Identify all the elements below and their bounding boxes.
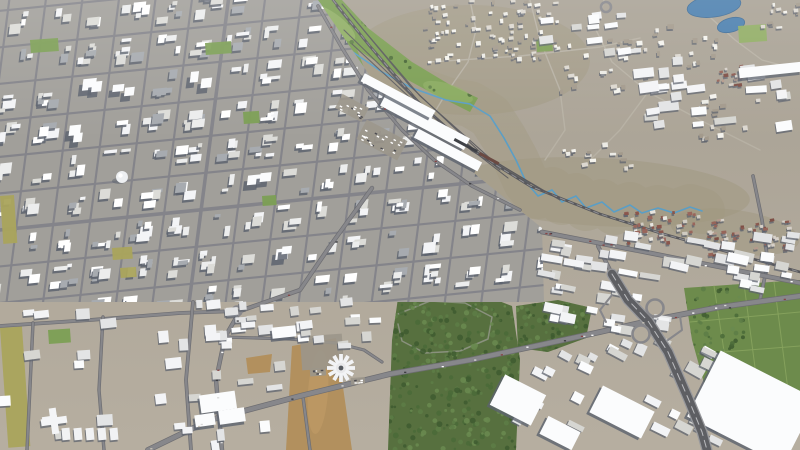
city-map-render	[0, 0, 800, 450]
haze-overlay	[0, 0, 800, 140]
map-canvas	[0, 0, 800, 450]
barracks-row	[60, 428, 118, 443]
